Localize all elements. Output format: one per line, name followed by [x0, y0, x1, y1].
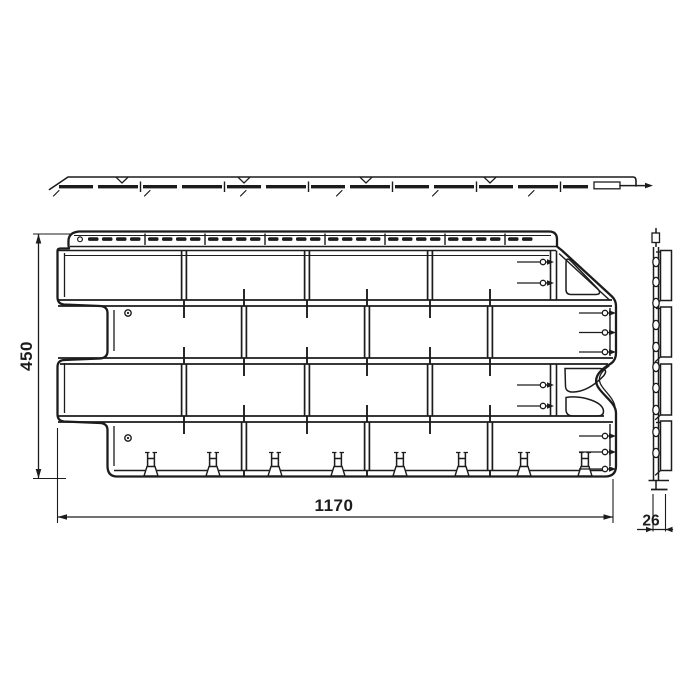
nail-slot — [370, 237, 381, 241]
under-tick — [433, 191, 439, 197]
nail-slot — [388, 237, 399, 241]
spine-bump — [653, 448, 659, 457]
nail-slot — [88, 237, 99, 241]
spine-bump — [653, 277, 659, 286]
fastener-mark-circle — [602, 433, 607, 438]
fastener-mark-circle — [602, 310, 607, 315]
fastener-mark-circle — [602, 349, 607, 354]
lock-tab-base — [578, 467, 592, 477]
side-block — [661, 364, 672, 415]
top-view — [50, 177, 654, 196]
v-notch-icon — [360, 177, 372, 183]
side-block — [661, 421, 672, 471]
lock-tab-base — [331, 467, 345, 477]
v-notch-icon — [116, 177, 128, 183]
lock-tab-base — [144, 467, 158, 477]
nail-slot — [282, 237, 293, 241]
plan-dash — [227, 185, 261, 188]
arrow-left-icon — [666, 527, 673, 532]
plan-dash — [350, 185, 390, 188]
under-tick — [145, 191, 151, 197]
depth-dimension-label: 26 — [642, 513, 660, 530]
nail-slot — [490, 237, 501, 241]
nail-slot — [522, 237, 533, 241]
nail-slot — [250, 237, 261, 241]
side-block — [661, 251, 672, 301]
arrow-up-icon — [36, 234, 42, 244]
lock-tab-base — [206, 467, 220, 477]
side-view-foot — [649, 481, 670, 490]
nail-slot — [222, 237, 233, 241]
nail-slot — [310, 237, 321, 241]
fastener-mark-circle — [602, 449, 607, 454]
plan-dash — [479, 185, 513, 188]
fastener-mark-circle — [540, 382, 545, 387]
top-view-under-ticks — [54, 191, 535, 197]
width-dimension-label: 1170 — [315, 496, 354, 515]
drawing-canvas: 450 1170 26 — [0, 0, 700, 700]
height-dimension-label: 450 — [17, 341, 36, 371]
spine-bump — [653, 362, 659, 371]
nail-slot — [190, 237, 201, 241]
lock-tab-base — [268, 467, 282, 477]
nail-slot — [102, 237, 113, 241]
nail-slot — [462, 237, 473, 241]
plan-dash — [182, 185, 222, 188]
plan-dash — [563, 185, 588, 188]
spine-bump — [653, 298, 659, 307]
spine-bump — [653, 342, 659, 351]
side-view-hem — [652, 233, 660, 243]
plan-dash — [518, 185, 558, 188]
under-tick — [529, 191, 535, 197]
plan-dash — [395, 185, 429, 188]
top-view-notches — [116, 177, 496, 183]
pin-hole-center — [127, 437, 129, 439]
plan-dash — [59, 185, 93, 188]
nail-slot — [430, 237, 441, 241]
nail-slot — [116, 237, 127, 241]
arrow-left-icon — [58, 514, 68, 520]
v-notch-icon — [238, 177, 250, 183]
pin-hole-center — [127, 312, 129, 314]
fastener-mark-circle — [540, 259, 545, 264]
nail-slot — [162, 237, 173, 241]
nail-slot — [176, 237, 187, 241]
spine-bump — [653, 320, 659, 329]
nail-slot — [208, 237, 219, 241]
fastener-mark-circle — [602, 466, 607, 471]
nail-slot — [268, 237, 279, 241]
nail-slot — [148, 237, 159, 241]
spine-bump — [653, 257, 659, 266]
nail-slot — [402, 237, 413, 241]
lock-tab-base — [455, 467, 469, 477]
side-block — [661, 307, 672, 357]
strip-end-hole — [78, 237, 83, 242]
lock-tab-base — [517, 467, 531, 477]
spine-bump — [653, 427, 659, 436]
plan-dash — [311, 185, 345, 188]
panel-outline — [58, 232, 617, 477]
v-notch-icon — [484, 177, 496, 183]
plan-dash — [143, 185, 177, 188]
nail-slot — [508, 237, 519, 241]
nail-slot — [476, 237, 487, 241]
front-view — [58, 232, 617, 477]
plan-dash — [98, 185, 138, 188]
side-view — [649, 229, 672, 490]
arrow-right-icon — [604, 514, 614, 520]
lock-tab-base — [393, 467, 407, 477]
spine-bump — [653, 405, 659, 414]
top-view-dash-row — [59, 182, 588, 193]
spine-bump — [653, 383, 659, 392]
nail-slot — [416, 237, 427, 241]
top-view-end-lock — [594, 182, 620, 189]
top-view-end-arrow-icon — [645, 183, 653, 189]
nail-slot — [130, 237, 141, 241]
under-tick — [241, 191, 247, 197]
arrow-down-icon — [36, 469, 42, 479]
fastener-mark-circle — [540, 403, 545, 408]
under-tick — [54, 191, 60, 197]
nail-slot — [296, 237, 307, 241]
plan-dash — [434, 185, 474, 188]
nail-slot — [448, 237, 459, 241]
plan-dash — [266, 185, 306, 188]
nail-slot — [356, 237, 367, 241]
panel-technical-drawing: 450 1170 26 — [0, 0, 700, 700]
under-tick — [337, 191, 343, 197]
nail-slot — [328, 237, 339, 241]
fastener-mark-circle — [540, 280, 545, 285]
nail-slot — [342, 237, 353, 241]
fastener-mark-circle — [602, 330, 607, 335]
nail-slot — [236, 237, 247, 241]
depth-dimension: 26 — [637, 494, 673, 532]
